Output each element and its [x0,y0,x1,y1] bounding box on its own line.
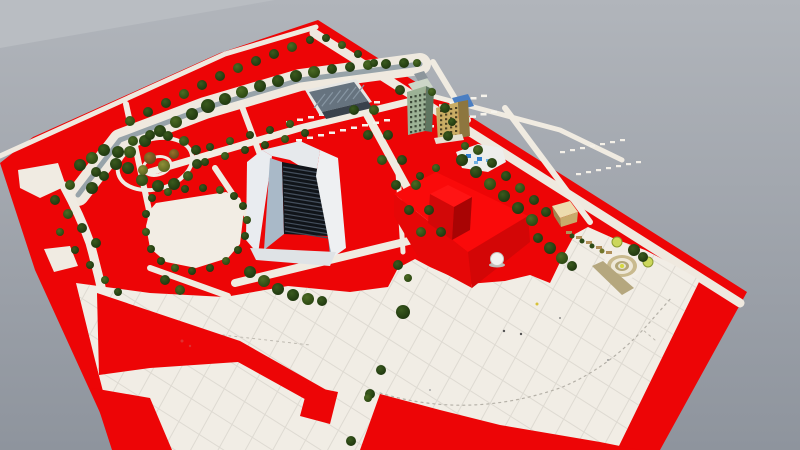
tree [91,167,101,177]
tree [215,71,225,81]
tree [206,143,214,151]
tree [377,155,387,165]
debris [607,359,609,361]
tree [287,42,297,52]
tree [638,252,648,262]
tree [244,266,256,278]
tree [411,180,421,190]
tree [470,166,482,178]
tree [428,88,436,96]
tree [221,152,229,160]
tree [142,228,150,236]
tree [110,158,122,170]
fountain-jet [620,264,624,268]
tree [183,171,193,181]
tree [436,227,446,237]
tree [216,186,224,194]
tree [413,59,421,67]
tree [393,260,403,270]
tree [222,257,230,265]
tree [98,144,110,156]
tree [77,223,87,233]
tree [251,56,261,66]
tree [515,183,525,193]
tree [160,275,170,285]
tree [383,130,393,140]
tree [322,34,330,42]
tree [484,178,496,190]
tree [443,131,453,141]
planter [600,249,605,254]
tree [192,159,202,169]
tree [114,288,122,296]
scene-canvas [0,0,800,450]
tree [541,207,551,217]
tree [241,232,249,240]
tree [254,80,266,92]
tree [201,99,215,113]
tree [345,62,355,72]
yellow-bush [612,237,622,247]
tree [201,158,209,166]
tree [349,105,359,115]
tree [261,141,269,149]
tree [181,185,189,193]
tree [381,59,391,69]
tree [122,162,134,174]
debris [429,389,431,391]
debris [536,303,539,306]
tree [158,160,170,172]
tree [440,103,450,113]
tree [246,131,254,139]
tree [143,107,153,117]
tree [241,146,249,154]
tree [186,108,198,120]
tree [306,36,314,44]
tree [86,261,94,269]
planter [590,244,595,249]
tree [286,120,294,128]
tree [424,205,434,215]
tree [395,85,405,95]
tree [179,89,189,99]
debris [503,330,505,332]
debris [189,345,191,347]
dome [491,253,504,266]
tree [556,252,568,264]
tree [533,233,543,243]
tree [370,59,378,67]
tree [399,58,409,68]
tree [188,267,196,275]
tree [327,64,337,74]
tree [50,195,60,205]
tree [86,152,98,164]
tree [168,178,180,190]
tree [147,245,155,253]
tree [136,174,148,186]
tree [171,264,179,272]
tree [124,146,136,158]
tree [397,155,407,165]
tree [473,145,483,155]
tree [301,129,309,137]
tree [529,195,539,205]
tree [369,105,379,115]
tree [163,131,173,141]
tree [272,75,284,87]
tree [148,194,156,202]
tree [287,289,299,301]
tree [236,86,248,98]
tree [226,137,234,145]
tree [243,216,251,224]
tree [71,246,79,254]
tree [206,264,214,272]
tree [86,182,98,194]
tree [487,158,497,168]
tree [338,41,346,49]
tree [74,159,86,171]
tree [233,63,243,73]
tan-tower-side [458,100,470,138]
tree [191,145,201,155]
tree [364,394,372,402]
tree [219,93,231,105]
tree [269,49,279,59]
tree [175,285,185,295]
tree [544,242,556,254]
tree [101,276,109,284]
tree [56,228,64,236]
tree [416,227,426,237]
debris [520,333,522,335]
tree [354,50,362,58]
tree [258,275,270,287]
tree [376,365,386,375]
tree [169,149,179,159]
tree [498,190,510,202]
tree [266,126,274,134]
tree [65,180,75,190]
tree [164,188,172,196]
tree [128,136,138,146]
tree [91,238,101,248]
tree [63,209,73,219]
tree [363,130,373,140]
tree [170,116,182,128]
tree [448,118,456,126]
tree [404,274,412,282]
tree [512,202,524,214]
tree [179,136,189,146]
tree [308,66,320,78]
tree [145,130,155,140]
tree [230,192,238,200]
planter [570,234,575,239]
tree [302,293,314,305]
tree [391,180,401,190]
tree [404,205,414,215]
tree [144,152,156,164]
tree [416,172,424,180]
tree [396,305,410,319]
tree [125,116,135,126]
tree [152,180,164,192]
planter [580,239,585,244]
tree [199,184,207,192]
tree [456,154,468,166]
tree [281,135,289,143]
tree [526,214,538,226]
tree [346,436,356,446]
tree [317,296,327,306]
tree [157,257,165,265]
debris [181,340,184,343]
tree [142,210,150,218]
tree [461,142,469,150]
tree [567,261,577,271]
tree [272,283,284,295]
tree [197,80,207,90]
debris [559,317,561,319]
tree [501,171,511,181]
tree [432,164,440,172]
tree [112,146,124,158]
tree [161,98,171,108]
tree [234,246,242,254]
3d-viewport[interactable] [0,0,800,450]
tree [628,244,640,256]
tree [138,165,148,175]
tree [239,202,247,210]
tree [290,70,302,82]
